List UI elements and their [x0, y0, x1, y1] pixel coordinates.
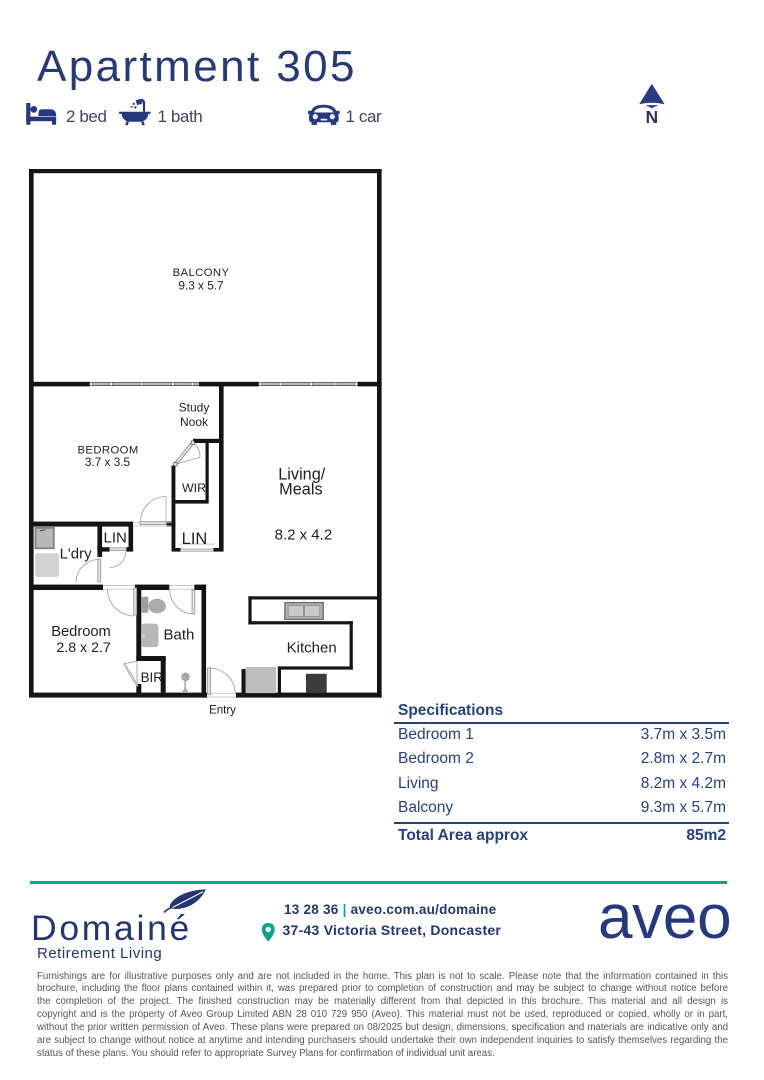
svg-text:3.7 x 3.5: 3.7 x 3.5 — [85, 455, 131, 469]
svg-text:2 bed: 2 bed — [66, 107, 107, 126]
svg-text:1 bath: 1 bath — [158, 107, 203, 126]
svg-text:Study: Study — [179, 400, 210, 414]
svg-text:BALCONY: BALCONY — [173, 267, 230, 279]
svg-text:1 car: 1 car — [346, 107, 383, 126]
svg-text:BIR: BIR — [141, 670, 164, 685]
svg-text:Bath: Bath — [163, 627, 194, 644]
svg-text:Bedroom: Bedroom — [51, 624, 111, 640]
svg-text:Entry: Entry — [209, 704, 236, 716]
svg-text:N: N — [645, 107, 658, 127]
svg-text:9.3 x 5.7: 9.3 x 5.7 — [178, 279, 223, 293]
svg-text:Nook: Nook — [180, 415, 209, 429]
svg-text:L'dry: L'dry — [60, 545, 93, 562]
svg-text:Meals: Meals — [279, 480, 322, 498]
svg-text:8.2 x 4.2: 8.2 x 4.2 — [275, 527, 333, 544]
svg-text:LIN: LIN — [182, 530, 208, 548]
svg-text:WIR: WIR — [182, 481, 206, 495]
svg-text:2.8 x 2.7: 2.8 x 2.7 — [56, 640, 111, 656]
svg-text:LIN: LIN — [104, 530, 127, 547]
svg-text:Kitchen: Kitchen — [287, 639, 337, 656]
